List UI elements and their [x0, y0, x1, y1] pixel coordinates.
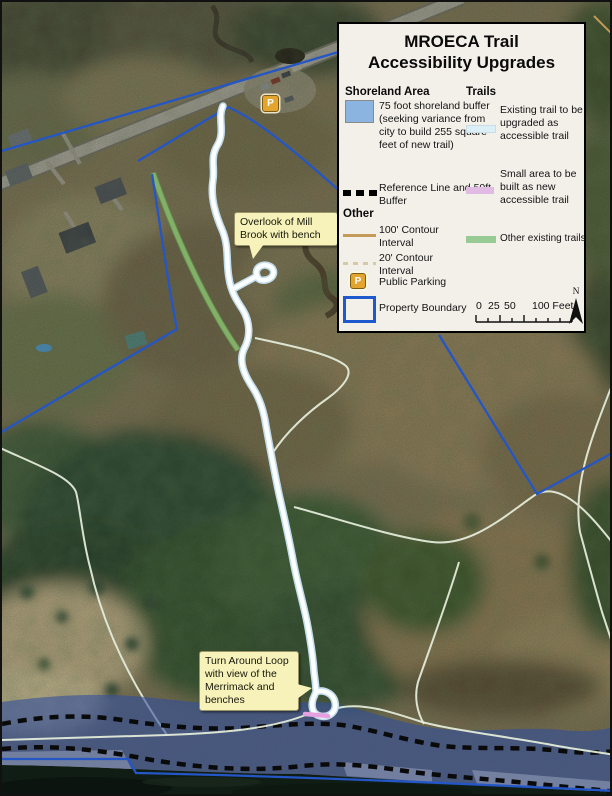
existing-trail-label: Existing trail to be upgraded as accessi… — [500, 104, 588, 143]
new-trail-swatch — [466, 187, 494, 194]
trails-section-header: Trails — [466, 86, 496, 98]
scale-bar-ruler — [475, 314, 573, 323]
map-frame: P Overlook of Mill Brook with bench Turn… — [0, 0, 612, 796]
scale-50: 50 — [504, 300, 516, 312]
north-label: N — [563, 287, 589, 297]
legend-panel: MROECA Trail Accessibility Upgrades Shor… — [337, 22, 586, 333]
north-arrow: N — [563, 287, 589, 327]
legend-title-line2: Accessibility Upgrades — [339, 52, 584, 73]
scale-25: 25 — [488, 300, 500, 312]
callout-overlook-text: Overlook of Mill Brook with bench — [240, 216, 321, 241]
scale-0: 0 — [476, 300, 482, 312]
shoreland-section-header: Shoreland Area — [345, 86, 430, 98]
other-trails-swatch — [466, 236, 496, 243]
contour-20-swatch — [343, 262, 376, 265]
reference-line-swatch — [343, 190, 377, 196]
parking-icon: P — [262, 95, 279, 112]
contour-100-label: 100' Contour Interval — [379, 224, 459, 250]
callout-tail — [297, 684, 312, 699]
shoreland-buffer-swatch — [345, 100, 374, 123]
callout-tail — [249, 244, 264, 259]
contour-20-label: 20' Contour Interval — [379, 252, 459, 278]
callout-overlook: Overlook of Mill Brook with bench — [234, 212, 338, 246]
parking-legend-icon: P — [350, 273, 366, 289]
other-section-header: Other — [343, 208, 374, 220]
other-trails-label: Other existing trails — [500, 232, 592, 245]
north-arrow-icon — [566, 297, 586, 325]
legend-title-line1: MROECA Trail — [339, 31, 584, 52]
callout-turnaround-text: Turn Around Loop with view of the Merrim… — [205, 655, 289, 706]
scale-bar-labels: 0 25 50 100 Feet — [339, 300, 584, 312]
public-parking-label: Public Parking — [379, 276, 479, 289]
new-trail-label: Small area to be built as new accessible… — [500, 168, 588, 207]
contour-100-swatch — [343, 234, 376, 237]
legend-title: MROECA Trail Accessibility Upgrades — [339, 31, 584, 73]
new-accessible-trail-segment — [305, 714, 328, 716]
callout-turnaround: Turn Around Loop with view of the Merrim… — [199, 651, 299, 711]
existing-trail-swatch — [466, 125, 496, 133]
reference-line-label: Reference Line and 50ft Buffer — [379, 182, 501, 208]
